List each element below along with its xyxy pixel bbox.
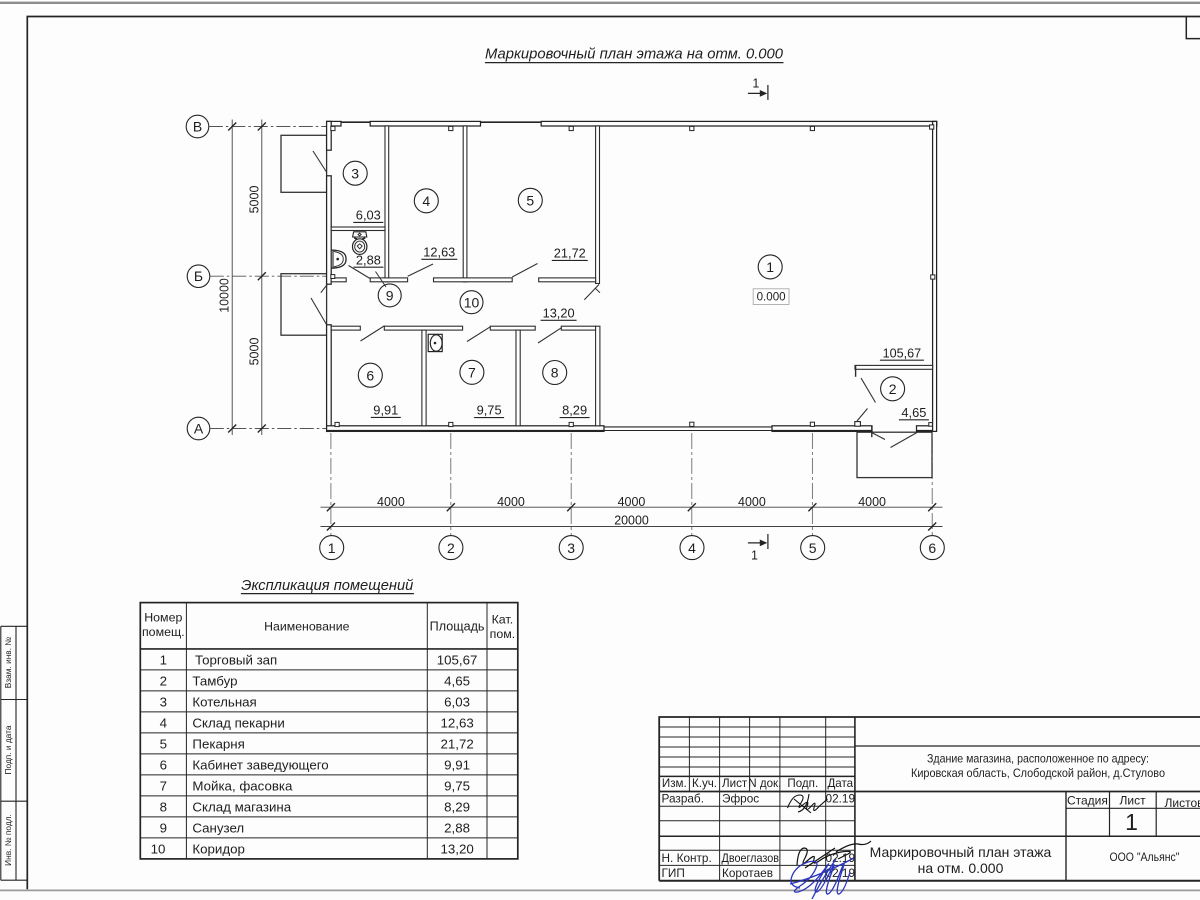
svg-text:10000: 10000 <box>218 278 232 313</box>
svg-text:1: 1 <box>752 77 759 91</box>
svg-text:Коридор: Коридор <box>192 842 245 857</box>
svg-text:ГИП: ГИП <box>662 866 685 880</box>
svg-text:Эфрос: Эфрос <box>722 791 759 805</box>
svg-text:4: 4 <box>422 193 430 209</box>
svg-text:Разраб.: Разраб. <box>662 791 704 805</box>
svg-text:ООО "Альянс": ООО "Альянс" <box>1110 850 1180 864</box>
svg-text:9,91: 9,91 <box>373 403 398 418</box>
svg-text:Кировская область, Слободской: Кировская область, Слободской район, д.С… <box>911 767 1165 780</box>
svg-text:4000: 4000 <box>738 495 766 509</box>
svg-text:4000: 4000 <box>858 495 886 509</box>
svg-text:Листов: Листов <box>1165 796 1200 810</box>
svg-text:Изм.: Изм. <box>662 777 687 790</box>
svg-text:2: 2 <box>889 381 897 397</box>
svg-text:Склад магазина: Склад магазина <box>192 800 291 815</box>
svg-text:3: 3 <box>351 165 359 181</box>
svg-text:4,65: 4,65 <box>444 674 470 689</box>
svg-text:Взам. инв. №: Взам. инв. № <box>3 637 13 689</box>
svg-text:Кабинет заведующего: Кабинет заведующего <box>192 758 328 773</box>
svg-text:на отм. 0.000: на отм. 0.000 <box>918 860 1004 876</box>
svg-text:2,88: 2,88 <box>444 821 470 836</box>
svg-text:Склад пекарни: Склад пекарни <box>192 716 284 731</box>
svg-text:Площадь: Площадь <box>430 620 485 634</box>
svg-text:13,20: 13,20 <box>440 842 473 857</box>
svg-text:Лист: Лист <box>1120 794 1147 808</box>
svg-text:4000: 4000 <box>497 495 525 509</box>
svg-text:12,63: 12,63 <box>423 244 455 259</box>
svg-text:4: 4 <box>160 716 167 731</box>
svg-text:К.уч.: К.уч. <box>692 777 717 790</box>
svg-text:6,03: 6,03 <box>444 695 470 710</box>
svg-text:Санузел: Санузел <box>192 821 244 836</box>
svg-text:8: 8 <box>551 365 559 381</box>
svg-text:8,29: 8,29 <box>562 403 587 418</box>
svg-text:6: 6 <box>366 367 374 383</box>
svg-text:5000: 5000 <box>248 186 262 214</box>
svg-text:Маркировочный план этажа: Маркировочный план этажа <box>870 844 1052 860</box>
svg-text:20000: 20000 <box>614 514 649 528</box>
svg-text:Экспликация помещений: Экспликация помещений <box>241 578 413 594</box>
svg-text:А: А <box>194 421 204 437</box>
svg-text:Наименование: Наименование <box>264 620 349 634</box>
svg-text:2: 2 <box>160 674 167 689</box>
svg-text:Стадия: Стадия <box>1067 794 1108 808</box>
svg-text:12,63: 12,63 <box>440 716 473 731</box>
svg-text:помещ.: помещ. <box>142 625 185 639</box>
svg-text:Котельная: Котельная <box>192 695 256 710</box>
svg-text:105,67: 105,67 <box>437 653 478 668</box>
svg-text:21,72: 21,72 <box>440 737 473 752</box>
svg-text:3: 3 <box>160 695 167 710</box>
svg-text:3: 3 <box>567 540 575 556</box>
svg-text:8: 8 <box>160 800 167 815</box>
svg-text:4000: 4000 <box>377 495 405 509</box>
svg-text:Н. Контр.: Н. Контр. <box>662 851 712 865</box>
svg-text:Подп. и дата: Подп. и дата <box>3 725 13 774</box>
svg-text:Коротаев: Коротаев <box>722 866 773 880</box>
svg-text:13,20: 13,20 <box>543 305 575 320</box>
svg-text:Мойка, фасовка: Мойка, фасовка <box>192 779 293 794</box>
svg-text:1: 1 <box>160 653 167 668</box>
svg-text:Номер: Номер <box>144 611 182 625</box>
svg-text:5: 5 <box>526 193 534 209</box>
svg-text:105,67: 105,67 <box>883 345 922 360</box>
svg-text:Лист: Лист <box>722 777 748 790</box>
svg-text:Инв. № подл.: Инв. № подл. <box>3 814 13 866</box>
svg-text:4: 4 <box>688 540 696 556</box>
svg-text:9,75: 9,75 <box>444 779 470 794</box>
svg-text:1: 1 <box>751 549 758 563</box>
svg-text:4000: 4000 <box>618 495 646 509</box>
svg-text:Торговый зап: Торговый зап <box>195 653 277 668</box>
svg-text:7: 7 <box>160 779 167 794</box>
svg-text:10: 10 <box>151 842 166 857</box>
svg-text:4,65: 4,65 <box>901 405 926 420</box>
svg-text:1: 1 <box>766 259 774 275</box>
svg-text:2,88: 2,88 <box>356 252 381 267</box>
svg-text:Кат.: Кат. <box>492 613 514 627</box>
svg-text:В: В <box>193 119 202 135</box>
svg-text:21,72: 21,72 <box>554 246 586 261</box>
svg-text:8,29: 8,29 <box>444 800 470 815</box>
svg-text:6: 6 <box>160 758 167 773</box>
svg-text:10: 10 <box>464 294 480 310</box>
svg-text:Пекарня: Пекарня <box>192 737 244 752</box>
svg-text:пом.: пом. <box>490 627 516 641</box>
svg-text:6,03: 6,03 <box>356 208 381 223</box>
svg-text:Маркировочный план этажа на от: Маркировочный план этажа на отм. 0.000 <box>485 46 784 63</box>
svg-text:9: 9 <box>386 288 394 304</box>
svg-text:5000: 5000 <box>248 338 262 366</box>
svg-text:5: 5 <box>160 737 167 752</box>
svg-text:9,91: 9,91 <box>444 758 470 773</box>
svg-text:9: 9 <box>160 821 167 836</box>
svg-text:5: 5 <box>809 540 817 556</box>
svg-text:Дата: Дата <box>827 777 853 790</box>
svg-text:1: 1 <box>1125 809 1138 835</box>
svg-text:0.000: 0.000 <box>757 292 786 304</box>
svg-text:Подп.: Подп. <box>787 777 818 790</box>
svg-text:7: 7 <box>468 365 476 381</box>
svg-text:Здание магазина, расположенное: Здание магазина, расположенное по адресу… <box>927 752 1149 765</box>
svg-text:1: 1 <box>328 540 336 556</box>
svg-text:N док.: N док. <box>748 777 781 790</box>
svg-text:2: 2 <box>447 540 455 556</box>
svg-text:Тамбур: Тамбур <box>192 674 237 689</box>
svg-text:Двоеглазов: Двоеглазов <box>722 851 780 865</box>
svg-text:6: 6 <box>928 540 936 556</box>
svg-text:02.19: 02.19 <box>826 791 856 805</box>
svg-text:Б: Б <box>194 268 203 284</box>
svg-text:9,75: 9,75 <box>477 403 502 418</box>
